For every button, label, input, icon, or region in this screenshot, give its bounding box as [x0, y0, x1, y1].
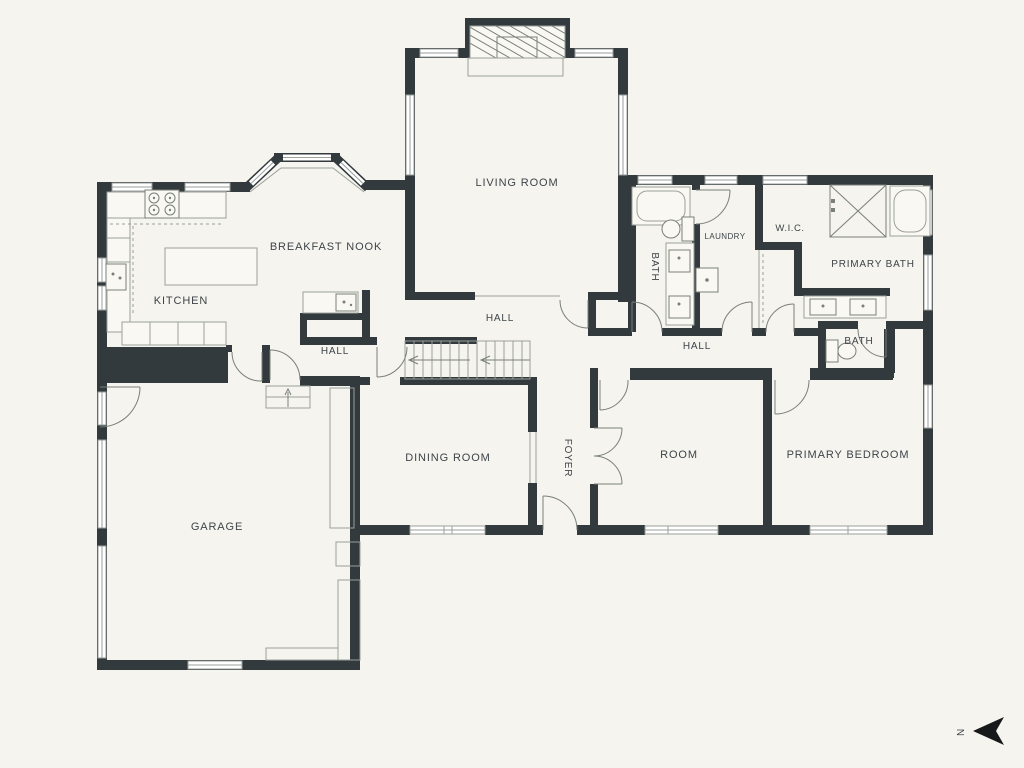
bay-window [246, 158, 368, 193]
floor-plan-page: LIVING ROOM BREAKFAST NOOK KITCHEN HALL … [0, 0, 1024, 768]
room-label-room: ROOM [660, 449, 698, 461]
front-door [543, 496, 577, 530]
bathtub [632, 187, 690, 225]
garage-fixtures [266, 296, 560, 660]
north-label: N [956, 728, 967, 736]
prep-sink [336, 294, 356, 311]
room-label-primary-bedroom: PRIMARY BEDROOM [787, 449, 910, 461]
door [696, 190, 730, 224]
window [98, 546, 106, 658]
window [98, 392, 106, 425]
window [619, 95, 627, 175]
window [410, 526, 485, 534]
vanity-double [666, 243, 694, 325]
room-label-hall-center: HALL [486, 313, 514, 324]
kitchen-sink [106, 264, 126, 290]
window [924, 385, 932, 428]
stove [145, 190, 179, 218]
primary-vanity [804, 296, 886, 318]
room-label-hall-bedrooms: HALL [683, 341, 711, 352]
door [775, 380, 809, 414]
window [924, 255, 932, 310]
counter-bottom [122, 322, 226, 345]
hearth [468, 58, 563, 76]
room-label-kitchen: KITCHEN [154, 295, 208, 307]
compass: N [956, 717, 1004, 745]
room-label-hall-kitchen: HALL [321, 346, 349, 357]
window [810, 526, 887, 534]
window [638, 176, 672, 184]
door [632, 302, 662, 332]
window [406, 95, 414, 175]
staircase [405, 341, 530, 379]
garage-steps [266, 386, 310, 408]
door [377, 347, 407, 377]
door [600, 380, 628, 410]
primary-bathtub [890, 186, 930, 236]
stair-direction-arrows [409, 356, 530, 364]
window [575, 49, 613, 57]
french-door [594, 428, 622, 484]
door [766, 304, 794, 332]
room-label-dining-room: DINING ROOM [405, 452, 490, 464]
window [98, 258, 106, 282]
garage-storage [266, 648, 338, 660]
door [722, 302, 752, 332]
garage-entry-door [270, 350, 300, 380]
window [763, 176, 807, 184]
window [705, 176, 737, 184]
floor-plan-svg: LIVING ROOM BREAKFAST NOOK KITCHEN HALL … [0, 0, 1024, 768]
window [98, 440, 106, 528]
room-label-wic: W.I.C. [775, 223, 804, 234]
room-label-breakfast-nook: BREAKFAST NOOK [270, 241, 382, 253]
room-label-bath-hall: BATH [649, 252, 660, 281]
window [420, 49, 458, 57]
window [185, 183, 230, 191]
room-label-laundry: LAUNDRY [705, 232, 746, 241]
door [232, 352, 262, 381]
window [188, 661, 242, 669]
kitchen-fixtures [106, 190, 358, 345]
room-label-primary-bath: PRIMARY BATH [831, 259, 915, 270]
room-label-living-room: LIVING ROOM [475, 177, 558, 189]
room-label-bath-primary: BATH [844, 336, 873, 347]
laundry-sink [696, 268, 718, 292]
north-arrow-icon [973, 717, 1004, 745]
shower [830, 185, 886, 237]
door [560, 300, 588, 328]
window [98, 286, 106, 310]
kitchen-island [165, 248, 257, 285]
room-label-garage: GARAGE [191, 521, 243, 533]
room-label-foyer: FOYER [562, 439, 573, 477]
window [645, 526, 718, 534]
